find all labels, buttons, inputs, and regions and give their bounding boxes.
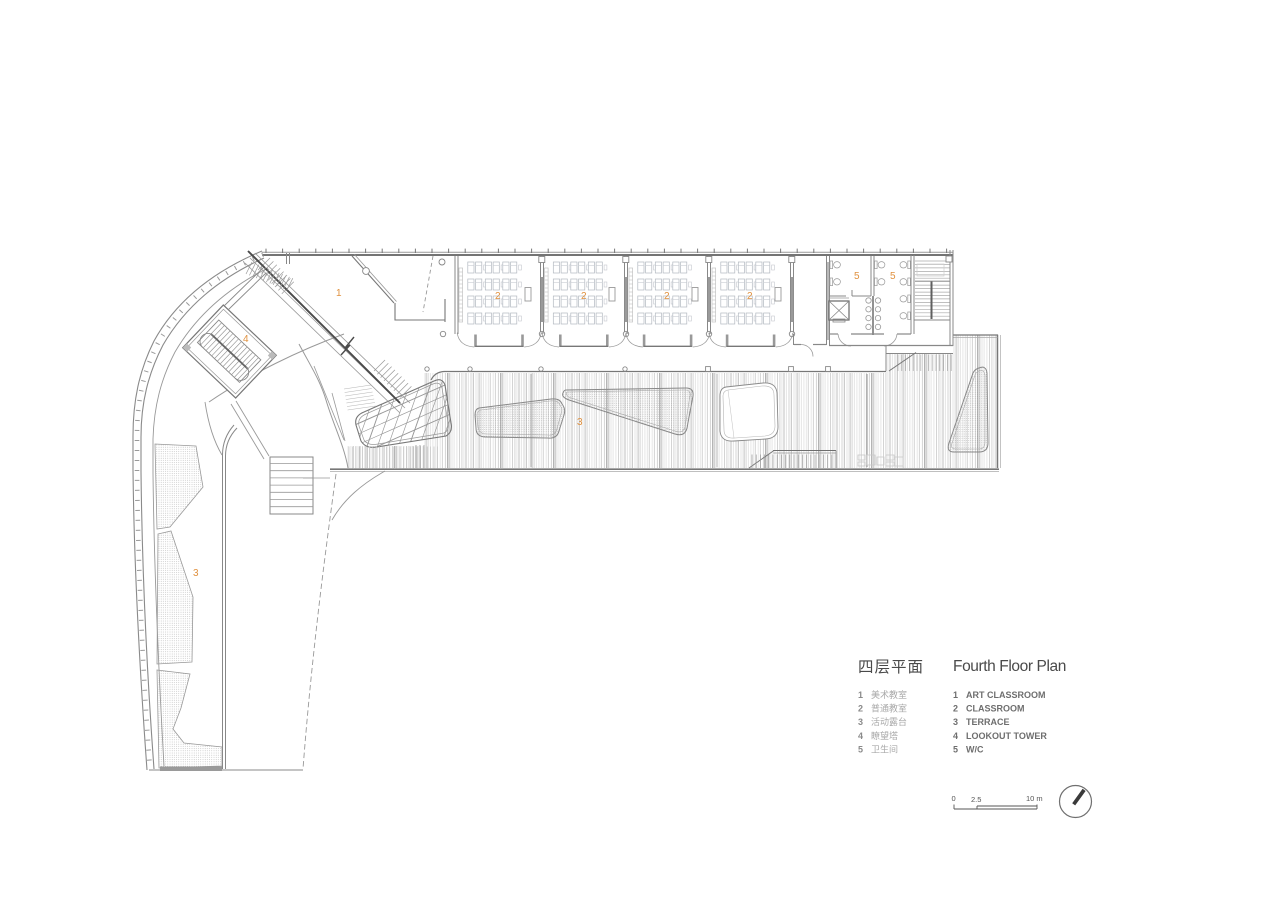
svg-text:4: 4 [858,731,863,741]
svg-text:2: 2 [581,291,587,302]
svg-text:2: 2 [495,291,501,302]
svg-text:四层平面: 四层平面 [858,659,924,676]
svg-text:3: 3 [953,717,958,727]
svg-text:TERRACE: TERRACE [966,717,1010,727]
svg-text:5: 5 [858,744,863,754]
svg-text:2: 2 [747,291,753,302]
svg-text:CLASSROOM: CLASSROOM [966,704,1025,714]
svg-text:5: 5 [890,271,896,282]
svg-text:2.5: 2.5 [971,795,981,804]
svg-text:Fourth Floor Plan: Fourth Floor Plan [953,658,1066,675]
svg-text:1: 1 [336,288,342,299]
svg-text:3: 3 [858,717,863,727]
svg-text:美术教室: 美术教室 [871,689,907,700]
svg-text:10 m: 10 m [1026,794,1043,803]
svg-text:卫生间: 卫生间 [871,743,898,754]
svg-text:2: 2 [953,704,958,714]
svg-text:5: 5 [854,271,860,282]
svg-text:0: 0 [952,794,956,803]
svg-text:瞭望塔: 瞭望塔 [871,730,898,741]
svg-text:活动露台: 活动露台 [871,716,907,727]
svg-text:4: 4 [243,334,249,345]
svg-text:2: 2 [664,291,670,302]
svg-text:普通教室: 普通教室 [871,703,907,714]
svg-text:W/C: W/C [966,744,984,754]
svg-text:4: 4 [953,731,958,741]
svg-text:1: 1 [953,690,958,700]
svg-text:5: 5 [953,744,958,754]
svg-text:LOOKOUT TOWER: LOOKOUT TOWER [966,731,1047,741]
svg-text:3: 3 [193,568,199,579]
svg-text:1: 1 [858,690,863,700]
svg-text:ART CLASSROOM: ART CLASSROOM [966,690,1046,700]
svg-text:3: 3 [577,417,583,428]
svg-text:2: 2 [858,704,863,714]
